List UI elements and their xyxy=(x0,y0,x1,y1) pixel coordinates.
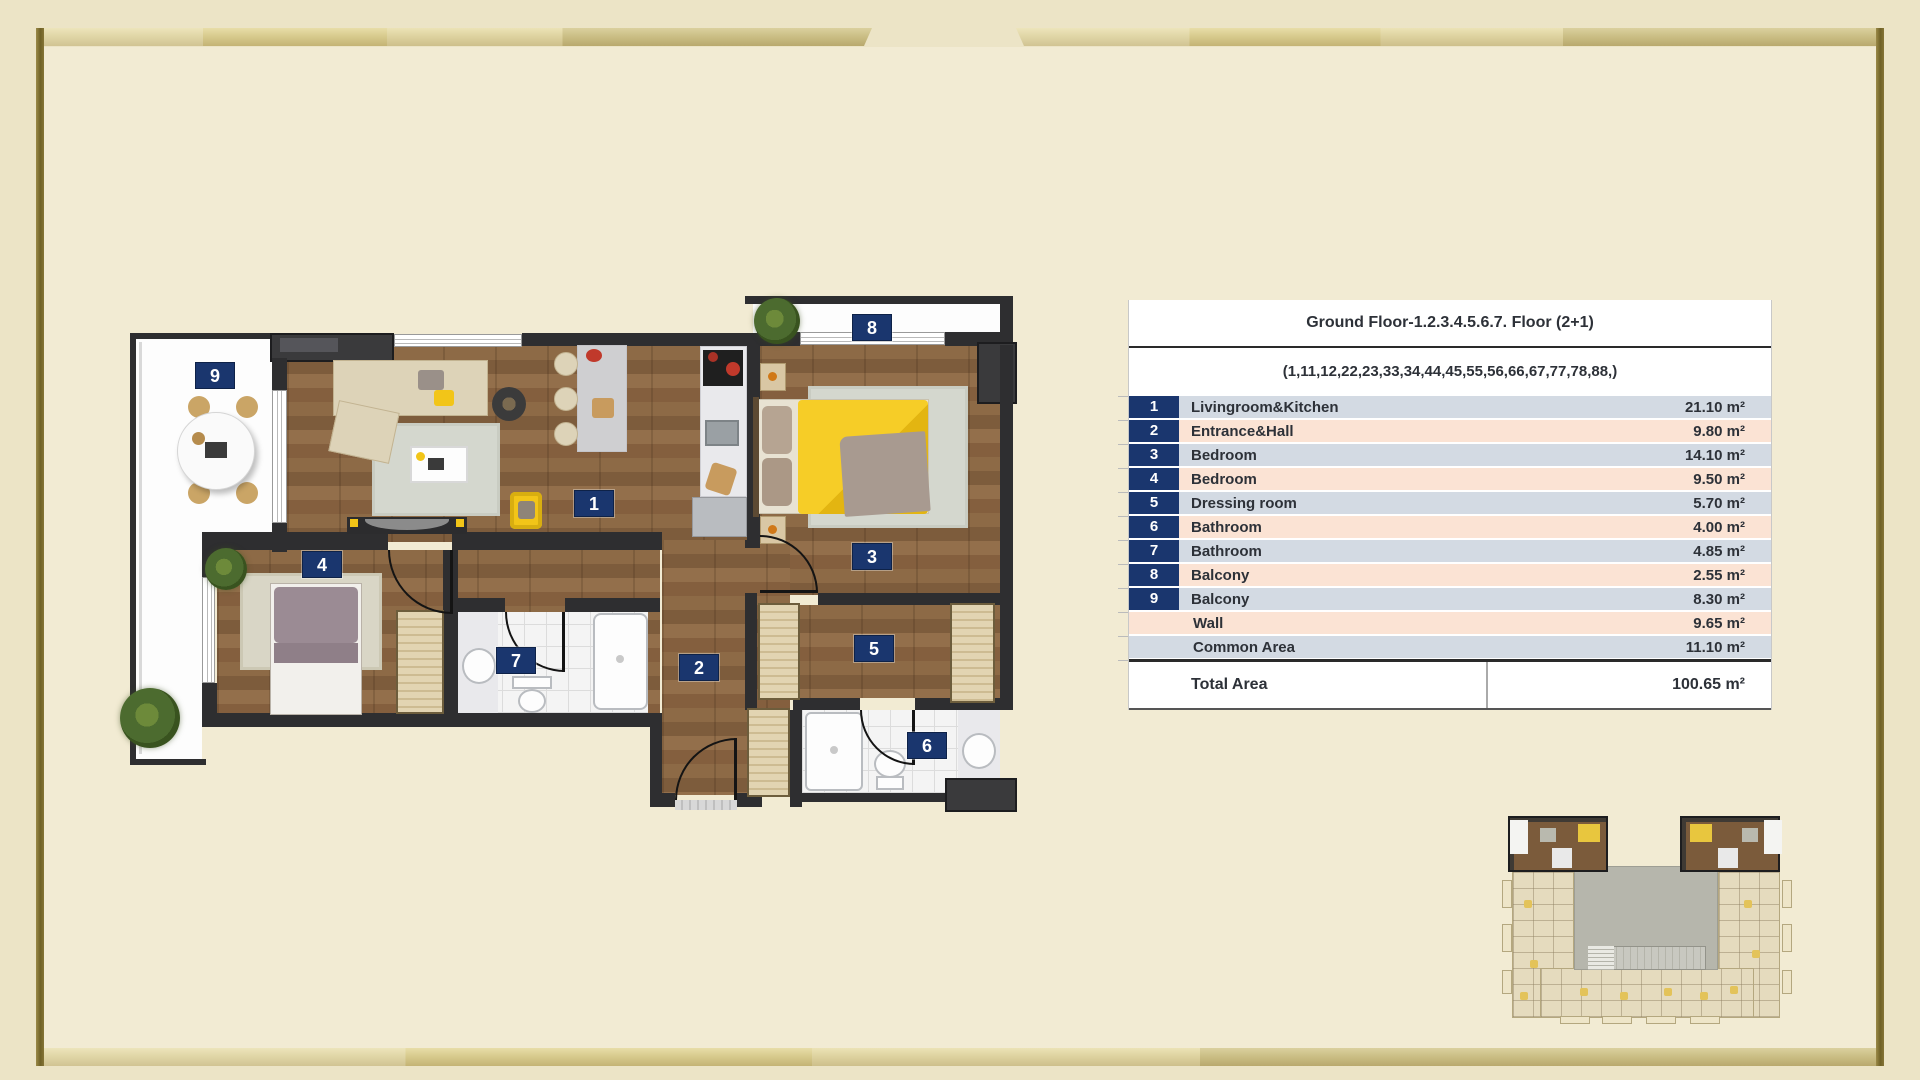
mini-balcony xyxy=(1782,970,1792,994)
room-badge-2: 2 xyxy=(679,654,719,681)
row-label: Livingroom&Kitchen xyxy=(1179,399,1685,416)
row-num: 5 xyxy=(1129,492,1179,514)
total-row: Total Area 100.65 m² xyxy=(1129,662,1771,708)
balcony8-plant xyxy=(754,298,800,344)
mini-accent xyxy=(1664,988,1672,996)
bath6-shower-drain xyxy=(830,746,838,754)
table-row: Wall 9.65 m² xyxy=(1129,612,1771,634)
building-overview xyxy=(1504,814,1790,1022)
highlighted-unit-right xyxy=(1680,816,1780,872)
building-bottom-wing xyxy=(1540,968,1754,1018)
island-pot xyxy=(586,349,602,362)
row-label: Dressing room xyxy=(1179,495,1693,512)
room-badge-3: 3 xyxy=(852,543,892,570)
stove-pot-red2 xyxy=(708,352,718,362)
mini-balcony xyxy=(1646,1016,1676,1024)
entrance-threshold xyxy=(675,800,737,810)
mini-accent xyxy=(1744,900,1752,908)
wall-dressing-top-a xyxy=(745,593,757,605)
mini-balcony xyxy=(1690,1016,1720,1024)
mini-accent xyxy=(1524,900,1532,908)
row-area: 9.80 m² xyxy=(1693,423,1771,440)
room-badge-6: 6 xyxy=(907,732,947,759)
ceiling-fan xyxy=(492,387,526,421)
stool-1 xyxy=(554,352,578,376)
row-num: 8 xyxy=(1129,564,1179,586)
bedroom4-window xyxy=(202,577,215,683)
wall-band-a xyxy=(202,532,388,550)
console-decor-right xyxy=(456,519,464,527)
wall-top xyxy=(522,333,750,346)
dressing-wardrobe-right xyxy=(950,603,995,703)
wall-hall-top-stub xyxy=(745,540,760,548)
row-area: 5.70 m² xyxy=(1693,495,1771,512)
table-row: 7 Bathroom 4.85 m² xyxy=(1129,540,1771,562)
living-window xyxy=(394,334,522,347)
stool-3 xyxy=(554,422,578,446)
bath7-toilet-bowl xyxy=(518,689,546,713)
bath7-tub-drain xyxy=(616,655,624,663)
row-label: Bathroom xyxy=(1179,519,1693,536)
row-label: Bathroom xyxy=(1179,543,1693,560)
bed3-pillow-2 xyxy=(762,458,792,506)
table-bottom-border xyxy=(1129,708,1771,710)
bed3-throw xyxy=(839,431,930,517)
bath7-sink xyxy=(462,648,496,684)
balcony9-plate xyxy=(192,432,205,445)
unit-bath xyxy=(1552,848,1572,868)
bed4-pillow xyxy=(274,587,358,643)
balcony9-border-top xyxy=(130,333,285,339)
bed4-fold xyxy=(274,643,358,663)
bath7-toilet-tank xyxy=(512,676,552,689)
unit-rug xyxy=(1742,828,1758,842)
row-label: Bedroom xyxy=(1179,471,1693,488)
room-badge-1: 1 xyxy=(574,490,614,517)
console-decor-left xyxy=(350,519,358,527)
balcony9-plant xyxy=(120,688,180,748)
flowers xyxy=(416,452,425,461)
stove-pot-red1 xyxy=(726,362,740,376)
mini-accent xyxy=(1752,950,1760,958)
row-num: 4 xyxy=(1129,468,1179,490)
unit-rug xyxy=(1540,828,1556,842)
row-area: 11.10 m² xyxy=(1686,639,1771,656)
total-label: Total Area xyxy=(1129,676,1672,694)
wall-bath7-top-b xyxy=(565,598,660,612)
row-num: 7 xyxy=(1129,540,1179,562)
row-num: 3 xyxy=(1129,444,1179,466)
island-tray xyxy=(592,398,614,418)
highlighted-unit-left xyxy=(1508,816,1608,872)
wall-hall-dressing-divider xyxy=(745,605,757,710)
table-title: Ground Floor-1.2.3.4.5.6.7. Floor (2+1) xyxy=(1129,300,1771,346)
balcony9-border-bottom xyxy=(130,759,206,765)
wall-bath6-left xyxy=(790,710,802,807)
row-label: Wall xyxy=(1129,615,1693,632)
wall-corner-block-se xyxy=(945,778,1017,812)
frame-top-left xyxy=(36,28,872,46)
kitchen-sink xyxy=(705,420,739,446)
mini-accent xyxy=(1700,992,1708,1000)
mini-balcony xyxy=(1602,1016,1632,1024)
table-row: 1 Livingroom&Kitchen 21.10 m² xyxy=(1129,396,1771,418)
mini-balcony xyxy=(1502,880,1512,908)
row-label: Balcony xyxy=(1179,591,1693,608)
wall-block-inner xyxy=(280,338,338,352)
row-label: Entrance&Hall xyxy=(1179,423,1693,440)
row-label: Balcony xyxy=(1179,567,1693,584)
wall-band-b xyxy=(452,532,662,550)
table-row: Common Area 11.10 m² xyxy=(1129,636,1771,658)
wall-bottom-left xyxy=(202,713,662,727)
room-badge-7: 7 xyxy=(496,647,536,674)
table-row: 2 Entrance&Hall 9.80 m² xyxy=(1129,420,1771,442)
mini-accent xyxy=(1620,992,1628,1000)
mini-accent xyxy=(1730,986,1738,994)
table-row: 5 Dressing room 5.70 m² xyxy=(1129,492,1771,514)
frame-top-right xyxy=(1016,28,1884,46)
room-badge-8: 8 xyxy=(852,314,892,341)
table-row: 6 Bathroom 4.00 m² xyxy=(1129,516,1771,538)
row-label: Bedroom xyxy=(1179,447,1685,464)
table-row: 4 Bedroom 9.50 m² xyxy=(1129,468,1771,490)
mini-accent xyxy=(1520,992,1528,1000)
row-area: 4.85 m² xyxy=(1693,543,1771,560)
laptop xyxy=(428,458,444,470)
entrance-door-leaf xyxy=(734,738,737,800)
hall-cabinet xyxy=(747,708,790,797)
unit-bed-yellow xyxy=(1578,824,1600,842)
table-row: 8 Balcony 2.55 m² xyxy=(1129,564,1771,586)
bedroom4-plant xyxy=(205,548,247,590)
row-area: 9.65 m² xyxy=(1693,615,1771,632)
bedroom3-door-leaf xyxy=(760,590,818,593)
mini-accent xyxy=(1530,960,1538,968)
armchair-cushion xyxy=(518,501,535,519)
nightstand3-lamp-bottom xyxy=(768,525,777,534)
bedroom4-door-leaf xyxy=(450,550,453,614)
table-subtitle: (1,11,12,22,23,33,34,44,45,55,56,66,67,7… xyxy=(1129,348,1771,396)
mini-balcony xyxy=(1502,924,1512,952)
wall-bath6-bottom xyxy=(802,793,947,802)
bedroom4-wardrobe xyxy=(396,610,444,714)
bed3-pillow-1 xyxy=(762,406,792,454)
area-table: Ground Floor-1.2.3.4.5.6.7. Floor (2+1) … xyxy=(1128,300,1772,710)
wall-bath6-top-a xyxy=(793,698,860,710)
wall-right xyxy=(1000,345,1013,710)
mini-balcony xyxy=(1502,970,1512,994)
wall-entrance-a xyxy=(650,793,675,807)
row-area: 14.10 m² xyxy=(1685,447,1771,464)
page: 1 2 3 4 5 6 7 8 9 Ground Floor-1.2.3.4.5… xyxy=(0,0,1920,1080)
room-badge-4: 4 xyxy=(302,551,342,578)
bath6-sink xyxy=(962,733,996,769)
unit-balcony xyxy=(1510,820,1528,854)
room-badge-5: 5 xyxy=(854,635,894,662)
bathroom7-door-leaf xyxy=(562,612,565,672)
row-num: 6 xyxy=(1129,516,1179,538)
balcony9-chair-2 xyxy=(236,396,258,418)
bed3-headboard xyxy=(753,397,759,517)
nightstand3-lamp-top xyxy=(768,372,777,381)
row-num: 2 xyxy=(1129,420,1179,442)
row-area: 21.10 m² xyxy=(1685,399,1771,416)
row-area: 8.30 m² xyxy=(1693,591,1771,608)
row-area: 2.55 m² xyxy=(1693,567,1771,584)
row-num: 9 xyxy=(1129,588,1179,610)
mini-balcony xyxy=(1782,924,1792,952)
total-col-divider xyxy=(1486,662,1488,708)
sofa-pillow-yellow xyxy=(434,390,454,406)
row-label: Common Area xyxy=(1129,639,1686,656)
table-row: 3 Bedroom 14.10 m² xyxy=(1129,444,1771,466)
row-area: 9.50 m² xyxy=(1693,471,1771,488)
bath6-toilet-tank xyxy=(876,776,904,790)
stool-2 xyxy=(554,387,578,411)
mini-accent xyxy=(1580,988,1588,996)
unit-balcony xyxy=(1764,820,1782,854)
room-badge-9: 9 xyxy=(195,362,235,389)
sofa-pillow xyxy=(418,370,444,390)
mini-balcony xyxy=(1782,880,1792,908)
kitchen-cabinet xyxy=(692,497,747,537)
dressing-wardrobe-left xyxy=(758,603,800,700)
unit-bed-yellow xyxy=(1690,824,1712,842)
mini-balcony xyxy=(1560,1016,1590,1024)
living-balcony-window xyxy=(272,390,287,523)
balcony9-chair-4 xyxy=(236,482,258,504)
row-num: 1 xyxy=(1129,396,1179,418)
table-row: 9 Balcony 8.30 m² xyxy=(1129,588,1771,610)
frame-right xyxy=(1876,28,1884,1066)
frame-left xyxy=(36,28,44,1066)
sheet-gridline-ticks xyxy=(1118,396,1128,662)
unit-bath xyxy=(1718,848,1738,868)
total-value: 100.65 m² xyxy=(1672,676,1771,694)
row-area: 4.00 m² xyxy=(1693,519,1771,536)
balcony9-laptop xyxy=(205,442,227,458)
stair-steps xyxy=(1588,946,1614,970)
frame-bottom xyxy=(36,1048,1884,1066)
